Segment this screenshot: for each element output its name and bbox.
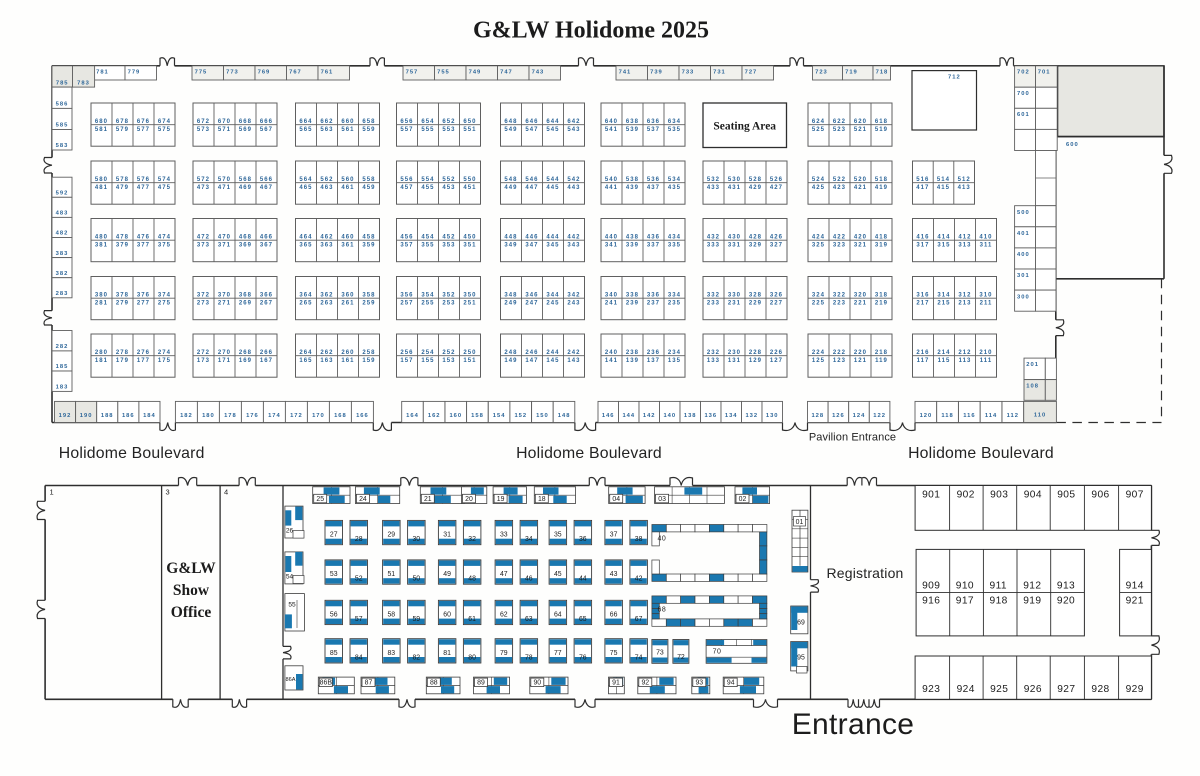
svg-text:146: 146 — [602, 413, 615, 419]
svg-text:537: 537 — [647, 127, 660, 133]
svg-text:435: 435 — [668, 185, 681, 191]
svg-text:382: 382 — [56, 271, 69, 277]
svg-text:73: 73 — [656, 650, 664, 657]
svg-text:383: 383 — [56, 251, 69, 257]
svg-text:361: 361 — [341, 243, 354, 249]
svg-text:243: 243 — [567, 301, 580, 307]
svg-text:540: 540 — [605, 177, 618, 183]
svg-text:481: 481 — [95, 185, 108, 191]
svg-text:622: 622 — [833, 119, 846, 125]
svg-text:217: 217 — [916, 301, 929, 307]
svg-text:66: 66 — [610, 612, 618, 619]
svg-text:314: 314 — [937, 293, 950, 299]
svg-text:124: 124 — [853, 413, 866, 419]
svg-text:556: 556 — [400, 177, 413, 183]
svg-text:180: 180 — [202, 413, 215, 419]
svg-text:Holidome Boulevard: Holidome Boulevard — [908, 445, 1054, 462]
svg-text:Holidome Boulevard: Holidome Boulevard — [59, 445, 205, 462]
svg-text:460: 460 — [341, 235, 354, 241]
svg-text:133: 133 — [707, 358, 720, 364]
svg-text:229: 229 — [749, 301, 762, 307]
svg-text:52: 52 — [355, 576, 363, 583]
svg-text:31: 31 — [443, 532, 451, 539]
svg-text:182: 182 — [180, 413, 193, 419]
svg-text:757: 757 — [406, 69, 419, 75]
svg-text:337: 337 — [647, 243, 660, 249]
svg-text:344: 344 — [546, 293, 559, 299]
svg-text:670: 670 — [218, 119, 231, 125]
svg-text:228: 228 — [749, 350, 762, 356]
svg-text:565: 565 — [299, 127, 312, 133]
svg-text:150: 150 — [536, 413, 549, 419]
svg-text:222: 222 — [833, 350, 846, 356]
svg-text:201: 201 — [1026, 362, 1039, 368]
svg-text:128: 128 — [811, 413, 824, 419]
svg-text:262: 262 — [320, 350, 333, 356]
svg-text:37: 37 — [610, 532, 618, 539]
svg-text:375: 375 — [158, 243, 171, 249]
svg-text:464: 464 — [299, 235, 312, 241]
svg-text:731: 731 — [713, 69, 726, 75]
svg-text:555: 555 — [421, 127, 434, 133]
svg-text:660: 660 — [341, 119, 354, 125]
svg-text:538: 538 — [626, 177, 639, 183]
svg-text:345: 345 — [546, 243, 559, 249]
svg-text:147: 147 — [525, 358, 538, 364]
svg-text:747: 747 — [500, 69, 513, 75]
svg-text:351: 351 — [463, 243, 476, 249]
svg-text:61: 61 — [468, 616, 476, 623]
svg-text:280: 280 — [95, 350, 108, 356]
svg-text:467: 467 — [260, 185, 273, 191]
svg-text:G&LW Holidome 2025: G&LW Holidome 2025 — [473, 18, 709, 44]
svg-text:918: 918 — [990, 596, 1008, 607]
svg-text:56: 56 — [330, 612, 338, 619]
svg-text:470: 470 — [218, 235, 231, 241]
svg-text:380: 380 — [95, 293, 108, 299]
svg-text:268: 268 — [239, 350, 252, 356]
svg-text:240: 240 — [605, 350, 618, 356]
svg-text:526: 526 — [770, 177, 783, 183]
svg-text:271: 271 — [218, 301, 231, 307]
svg-text:46: 46 — [525, 576, 533, 583]
svg-text:672: 672 — [197, 119, 210, 125]
svg-text:453: 453 — [442, 185, 455, 191]
svg-text:248: 248 — [504, 350, 517, 356]
svg-text:429: 429 — [749, 185, 762, 191]
svg-text:341: 341 — [605, 243, 618, 249]
svg-text:718: 718 — [876, 69, 889, 75]
svg-text:32: 32 — [468, 536, 476, 543]
svg-text:926: 926 — [1024, 684, 1042, 695]
svg-text:369: 369 — [239, 243, 252, 249]
svg-text:444: 444 — [546, 235, 559, 241]
svg-text:547: 547 — [525, 127, 538, 133]
svg-text:127: 127 — [770, 358, 783, 364]
svg-text:79: 79 — [500, 650, 508, 657]
svg-text:418: 418 — [875, 235, 888, 241]
svg-text:29: 29 — [387, 532, 395, 539]
svg-text:781: 781 — [96, 69, 109, 75]
svg-text:258: 258 — [362, 350, 375, 356]
svg-text:70: 70 — [713, 649, 722, 656]
svg-text:149: 149 — [504, 358, 517, 364]
svg-text:461: 461 — [341, 185, 354, 191]
svg-text:530: 530 — [728, 177, 741, 183]
svg-text:512: 512 — [958, 177, 971, 183]
svg-text:212: 212 — [958, 350, 971, 356]
svg-text:701: 701 — [1038, 69, 1051, 75]
svg-text:323: 323 — [833, 243, 846, 249]
svg-text:463: 463 — [320, 185, 333, 191]
svg-text:755: 755 — [437, 69, 450, 75]
svg-text:542: 542 — [567, 177, 580, 183]
svg-text:557: 557 — [400, 127, 413, 133]
svg-text:35: 35 — [554, 532, 562, 539]
svg-text:332: 332 — [707, 293, 720, 299]
svg-text:560: 560 — [341, 177, 354, 183]
svg-text:269: 269 — [239, 301, 252, 307]
svg-text:1: 1 — [50, 488, 54, 497]
svg-text:315: 315 — [937, 243, 950, 249]
svg-text:666: 666 — [260, 119, 273, 125]
svg-text:580: 580 — [95, 177, 108, 183]
svg-text:521: 521 — [854, 127, 867, 133]
svg-text:188: 188 — [101, 413, 114, 419]
svg-text:400: 400 — [1017, 252, 1030, 258]
svg-text:554: 554 — [421, 177, 434, 183]
svg-text:01: 01 — [796, 519, 804, 526]
svg-text:642: 642 — [567, 119, 580, 125]
svg-text:658: 658 — [362, 119, 375, 125]
svg-text:83: 83 — [387, 650, 395, 657]
svg-text:576: 576 — [137, 177, 150, 183]
svg-text:121: 121 — [854, 358, 867, 364]
svg-text:135: 135 — [668, 358, 681, 364]
svg-text:210: 210 — [979, 350, 992, 356]
svg-text:266: 266 — [260, 350, 273, 356]
svg-text:252: 252 — [442, 350, 455, 356]
svg-text:783: 783 — [77, 81, 90, 87]
svg-text:578: 578 — [116, 177, 129, 183]
svg-text:21: 21 — [424, 496, 432, 503]
svg-text:233: 233 — [707, 301, 720, 307]
svg-text:04: 04 — [612, 496, 620, 503]
svg-text:532: 532 — [707, 177, 720, 183]
svg-text:348: 348 — [504, 293, 517, 299]
svg-text:220: 220 — [854, 350, 867, 356]
svg-text:47: 47 — [500, 571, 508, 578]
svg-text:342: 342 — [567, 293, 580, 299]
svg-text:219: 219 — [875, 301, 888, 307]
svg-text:123: 123 — [833, 358, 846, 364]
svg-text:680: 680 — [95, 119, 108, 125]
svg-text:264: 264 — [299, 350, 312, 356]
svg-text:546: 546 — [525, 177, 538, 183]
svg-text:184: 184 — [143, 413, 156, 419]
svg-text:652: 652 — [442, 119, 455, 125]
svg-text:577: 577 — [137, 127, 150, 133]
svg-text:413: 413 — [958, 185, 971, 191]
svg-text:363: 363 — [320, 243, 333, 249]
svg-text:410: 410 — [979, 235, 992, 241]
svg-text:310: 310 — [979, 293, 992, 299]
svg-text:712: 712 — [948, 75, 961, 81]
svg-text:231: 231 — [728, 301, 741, 307]
svg-text:317: 317 — [916, 243, 929, 249]
svg-text:656: 656 — [400, 119, 413, 125]
svg-text:40: 40 — [658, 536, 667, 543]
svg-text:272: 272 — [197, 350, 210, 356]
svg-text:316: 316 — [916, 293, 929, 299]
svg-text:116: 116 — [963, 413, 975, 419]
svg-text:913: 913 — [1057, 581, 1075, 592]
svg-text:190: 190 — [80, 413, 93, 419]
svg-text:230: 230 — [728, 350, 741, 356]
svg-text:110: 110 — [1034, 413, 1046, 419]
svg-text:3: 3 — [166, 488, 170, 497]
svg-text:654: 654 — [421, 119, 434, 125]
svg-text:234: 234 — [668, 350, 681, 356]
svg-text:50: 50 — [412, 576, 420, 583]
svg-text:436: 436 — [647, 235, 660, 241]
svg-text:265: 265 — [299, 301, 312, 307]
svg-text:125: 125 — [812, 358, 825, 364]
svg-text:445: 445 — [546, 185, 559, 191]
svg-text:335: 335 — [668, 243, 681, 249]
svg-text:277: 277 — [137, 301, 150, 307]
svg-text:238: 238 — [626, 350, 639, 356]
svg-text:245: 245 — [546, 301, 559, 307]
svg-text:82: 82 — [412, 654, 420, 661]
svg-text:923: 923 — [922, 684, 940, 695]
svg-text:543: 543 — [567, 127, 580, 133]
svg-text:48: 48 — [468, 576, 476, 583]
svg-text:568: 568 — [239, 177, 252, 183]
svg-text:321: 321 — [854, 243, 867, 249]
svg-text:44: 44 — [579, 576, 587, 583]
svg-text:455: 455 — [421, 185, 434, 191]
svg-text:78: 78 — [525, 654, 533, 661]
svg-text:325: 325 — [812, 243, 825, 249]
svg-text:592: 592 — [56, 191, 69, 197]
svg-text:366: 366 — [260, 293, 273, 299]
svg-text:49: 49 — [443, 571, 451, 578]
svg-text:175: 175 — [158, 358, 171, 364]
svg-text:362: 362 — [320, 293, 333, 299]
svg-text:438: 438 — [626, 235, 639, 241]
svg-text:275: 275 — [158, 301, 171, 307]
svg-text:38: 38 — [635, 536, 643, 543]
svg-text:465: 465 — [299, 185, 312, 191]
svg-text:162: 162 — [428, 413, 441, 419]
svg-text:256: 256 — [400, 350, 413, 356]
svg-text:250: 250 — [463, 350, 476, 356]
svg-text:548: 548 — [504, 177, 517, 183]
svg-text:333: 333 — [707, 243, 720, 249]
svg-text:126: 126 — [832, 413, 845, 419]
svg-text:468: 468 — [239, 235, 252, 241]
svg-text:466: 466 — [260, 235, 273, 241]
svg-text:281: 281 — [95, 301, 108, 307]
svg-text:567: 567 — [260, 127, 273, 133]
svg-text:117: 117 — [917, 358, 930, 364]
svg-text:164: 164 — [406, 413, 419, 419]
svg-text:523: 523 — [833, 127, 846, 133]
svg-text:549: 549 — [504, 127, 517, 133]
svg-text:329: 329 — [749, 243, 762, 249]
svg-text:324: 324 — [812, 293, 825, 299]
svg-text:379: 379 — [116, 243, 129, 249]
svg-text:62: 62 — [500, 612, 508, 619]
svg-text:158: 158 — [471, 413, 484, 419]
svg-text:27: 27 — [330, 532, 338, 539]
svg-text:773: 773 — [226, 69, 239, 75]
svg-text:650: 650 — [463, 119, 476, 125]
svg-text:917: 917 — [956, 596, 974, 607]
svg-text:Show: Show — [173, 582, 210, 599]
svg-text:564: 564 — [299, 177, 312, 183]
svg-text:114: 114 — [985, 413, 997, 419]
svg-text:739: 739 — [650, 69, 663, 75]
svg-text:424: 424 — [812, 235, 825, 241]
svg-text:700: 700 — [1017, 91, 1030, 97]
svg-text:216: 216 — [916, 350, 929, 356]
svg-text:741: 741 — [619, 69, 632, 75]
svg-text:427: 427 — [770, 185, 783, 191]
svg-text:25: 25 — [316, 496, 324, 503]
svg-text:423: 423 — [833, 185, 846, 191]
svg-text:Entrance: Entrance — [792, 708, 914, 741]
svg-text:539: 539 — [626, 127, 639, 133]
svg-text:170: 170 — [312, 413, 325, 419]
svg-text:456: 456 — [400, 235, 413, 241]
svg-text:163: 163 — [320, 358, 333, 364]
svg-text:551: 551 — [463, 127, 476, 133]
svg-text:171: 171 — [218, 358, 231, 364]
svg-text:322: 322 — [833, 293, 846, 299]
svg-text:87: 87 — [365, 680, 373, 687]
svg-text:340: 340 — [605, 293, 618, 299]
svg-text:416: 416 — [916, 235, 929, 241]
svg-text:575: 575 — [158, 127, 171, 133]
svg-text:910: 910 — [956, 581, 974, 592]
svg-text:67: 67 — [635, 616, 643, 623]
svg-text:235: 235 — [668, 301, 681, 307]
svg-text:480: 480 — [95, 235, 108, 241]
svg-text:925: 925 — [990, 684, 1008, 695]
svg-text:761: 761 — [321, 69, 334, 75]
svg-text:69: 69 — [797, 620, 805, 627]
svg-text:G&LW: G&LW — [166, 560, 216, 577]
svg-text:370: 370 — [218, 293, 231, 299]
svg-text:63: 63 — [525, 616, 533, 623]
svg-text:912: 912 — [1023, 581, 1041, 592]
svg-text:723: 723 — [815, 69, 828, 75]
svg-text:84: 84 — [355, 654, 363, 661]
svg-text:130: 130 — [766, 413, 779, 419]
svg-text:528: 528 — [749, 177, 762, 183]
svg-text:249: 249 — [504, 301, 517, 307]
svg-text:428: 428 — [749, 235, 762, 241]
svg-text:662: 662 — [320, 119, 333, 125]
svg-text:356: 356 — [400, 293, 413, 299]
svg-text:624: 624 — [812, 119, 825, 125]
svg-text:350: 350 — [463, 293, 476, 299]
svg-text:479: 479 — [116, 185, 129, 191]
svg-text:353: 353 — [442, 243, 455, 249]
svg-text:Registration: Registration — [826, 565, 903, 581]
svg-text:443: 443 — [567, 185, 580, 191]
svg-text:137: 137 — [647, 358, 660, 364]
svg-text:253: 253 — [442, 301, 455, 307]
svg-text:24: 24 — [359, 496, 367, 503]
svg-text:20: 20 — [465, 496, 473, 503]
svg-text:183: 183 — [56, 385, 69, 391]
svg-text:330: 330 — [728, 293, 741, 299]
svg-text:414: 414 — [937, 235, 950, 241]
svg-text:719: 719 — [845, 69, 858, 75]
svg-text:55: 55 — [288, 602, 296, 609]
svg-text:119: 119 — [875, 358, 888, 364]
svg-text:215: 215 — [937, 301, 950, 307]
svg-text:544: 544 — [546, 177, 559, 183]
svg-text:51: 51 — [387, 571, 395, 578]
svg-text:177: 177 — [137, 358, 150, 364]
svg-text:65: 65 — [579, 616, 587, 623]
svg-text:346: 346 — [525, 293, 538, 299]
svg-text:474: 474 — [158, 235, 171, 241]
svg-text:131: 131 — [728, 358, 741, 364]
svg-text:263: 263 — [320, 301, 333, 307]
svg-text:336: 336 — [647, 293, 660, 299]
svg-text:566: 566 — [260, 177, 273, 183]
svg-text:601: 601 — [1017, 112, 1030, 118]
svg-text:270: 270 — [218, 350, 231, 356]
svg-text:154: 154 — [493, 413, 506, 419]
svg-text:94: 94 — [727, 680, 735, 687]
svg-text:244: 244 — [546, 350, 559, 356]
svg-text:536: 536 — [647, 177, 660, 183]
svg-text:143: 143 — [567, 358, 580, 364]
svg-text:168: 168 — [334, 413, 347, 419]
svg-text:26: 26 — [286, 528, 294, 535]
svg-text:437: 437 — [647, 185, 660, 191]
svg-text:426: 426 — [770, 235, 783, 241]
svg-text:368: 368 — [239, 293, 252, 299]
svg-text:185: 185 — [56, 364, 69, 370]
svg-text:88: 88 — [430, 680, 438, 687]
svg-text:360: 360 — [341, 293, 354, 299]
svg-text:586: 586 — [56, 102, 69, 108]
svg-text:192: 192 — [59, 413, 72, 419]
svg-text:674: 674 — [158, 119, 171, 125]
svg-text:431: 431 — [728, 185, 741, 191]
svg-text:518: 518 — [875, 177, 888, 183]
svg-text:86B: 86B — [320, 680, 333, 687]
svg-text:Holidome Boulevard: Holidome Boulevard — [516, 445, 662, 462]
svg-text:640: 640 — [605, 119, 618, 125]
svg-text:246: 246 — [525, 350, 538, 356]
svg-text:558: 558 — [362, 177, 375, 183]
svg-text:54: 54 — [286, 574, 294, 581]
svg-text:583: 583 — [56, 143, 69, 149]
svg-text:452: 452 — [442, 235, 455, 241]
svg-text:254: 254 — [421, 350, 434, 356]
svg-text:916: 916 — [922, 596, 940, 607]
svg-text:60: 60 — [443, 612, 451, 619]
svg-text:113: 113 — [959, 358, 972, 364]
